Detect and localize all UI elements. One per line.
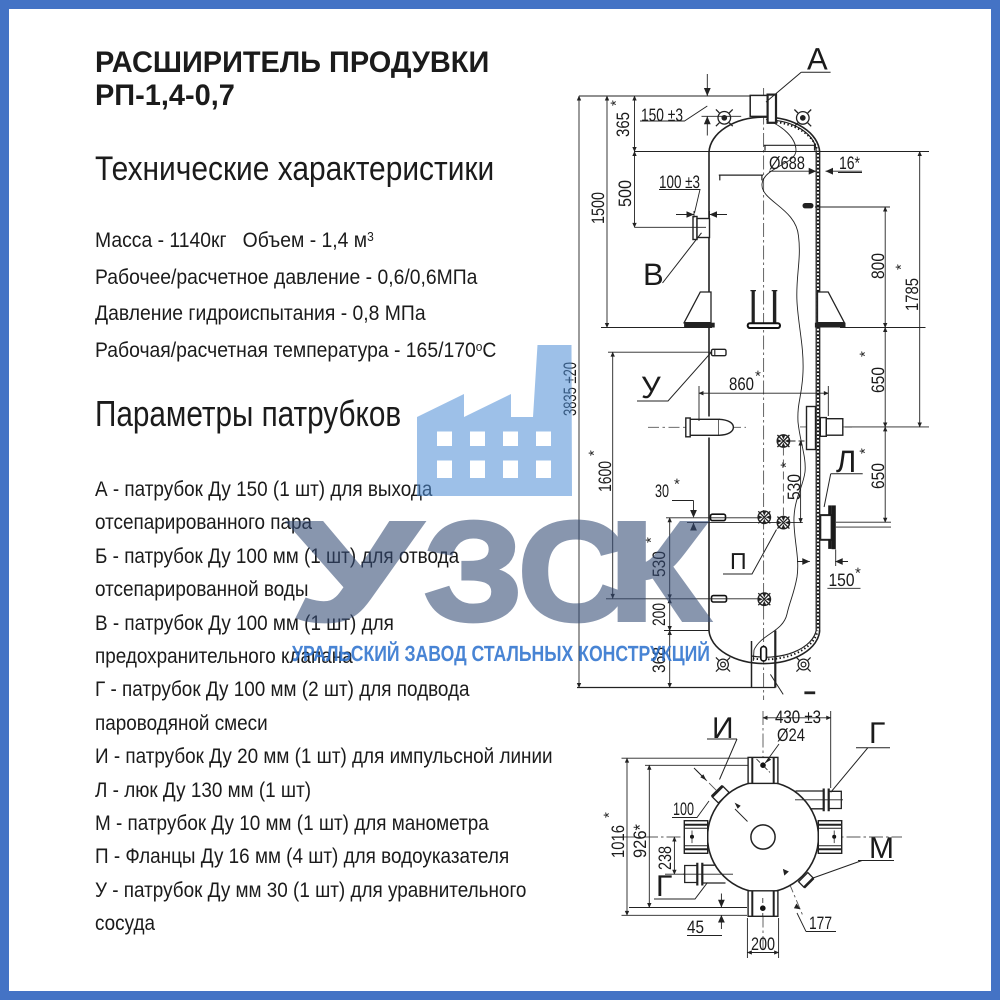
svg-text:1016: 1016 <box>608 825 628 858</box>
svg-text:530: 530 <box>784 474 804 500</box>
svg-text:Г: Г <box>656 870 672 903</box>
svg-text:650: 650 <box>868 367 888 393</box>
svg-text:150: 150 <box>829 570 855 590</box>
svg-text:*: * <box>643 537 660 543</box>
svg-text:200: 200 <box>649 603 669 626</box>
svg-text:100 ±3: 100 ±3 <box>659 172 700 192</box>
svg-text:*: * <box>755 368 761 385</box>
svg-text:*: * <box>586 450 603 456</box>
svg-text:1600: 1600 <box>595 461 615 492</box>
svg-text:И: И <box>712 712 734 745</box>
svg-text:650: 650 <box>868 463 888 489</box>
svg-text:П: П <box>730 548 747 574</box>
svg-text:А: А <box>807 42 828 77</box>
svg-text:860: 860 <box>729 374 754 394</box>
svg-text:Ø24: Ø24 <box>777 725 805 745</box>
svg-text:530: 530 <box>649 551 669 577</box>
svg-text:500: 500 <box>615 180 635 207</box>
svg-text:926*: 926* <box>630 824 650 858</box>
svg-text:Г: Г <box>869 717 885 750</box>
svg-text:М: М <box>869 832 894 865</box>
svg-text:Ø688: Ø688 <box>769 153 805 173</box>
svg-text:*: * <box>778 462 795 468</box>
svg-text:200: 200 <box>751 934 775 954</box>
svg-text:*: * <box>601 812 618 818</box>
svg-text:У: У <box>641 370 661 405</box>
svg-text:16*: 16* <box>839 153 860 173</box>
svg-text:*: * <box>893 264 910 270</box>
svg-text:45: 45 <box>687 917 704 937</box>
svg-text:100: 100 <box>673 799 694 819</box>
svg-text:Л: Л <box>836 444 856 479</box>
svg-text:30: 30 <box>655 481 669 501</box>
svg-text:177: 177 <box>809 913 832 933</box>
svg-text:150 ±3: 150 ±3 <box>641 105 683 125</box>
svg-text:800: 800 <box>868 253 888 279</box>
svg-text:*: * <box>857 448 874 454</box>
svg-text:368: 368 <box>649 647 669 673</box>
svg-text:1785: 1785 <box>902 278 922 311</box>
svg-text:*: * <box>674 476 680 493</box>
svg-text:1500: 1500 <box>588 192 608 224</box>
svg-text:3835 ±20: 3835 ±20 <box>560 362 580 416</box>
svg-text:*: * <box>857 351 874 357</box>
svg-text:365: 365 <box>613 112 633 137</box>
svg-text:238: 238 <box>655 846 675 870</box>
svg-text:430 ±3: 430 ±3 <box>775 707 821 727</box>
svg-text:*: * <box>608 100 625 106</box>
svg-text:*: * <box>855 565 861 582</box>
svg-text:В: В <box>643 257 664 292</box>
